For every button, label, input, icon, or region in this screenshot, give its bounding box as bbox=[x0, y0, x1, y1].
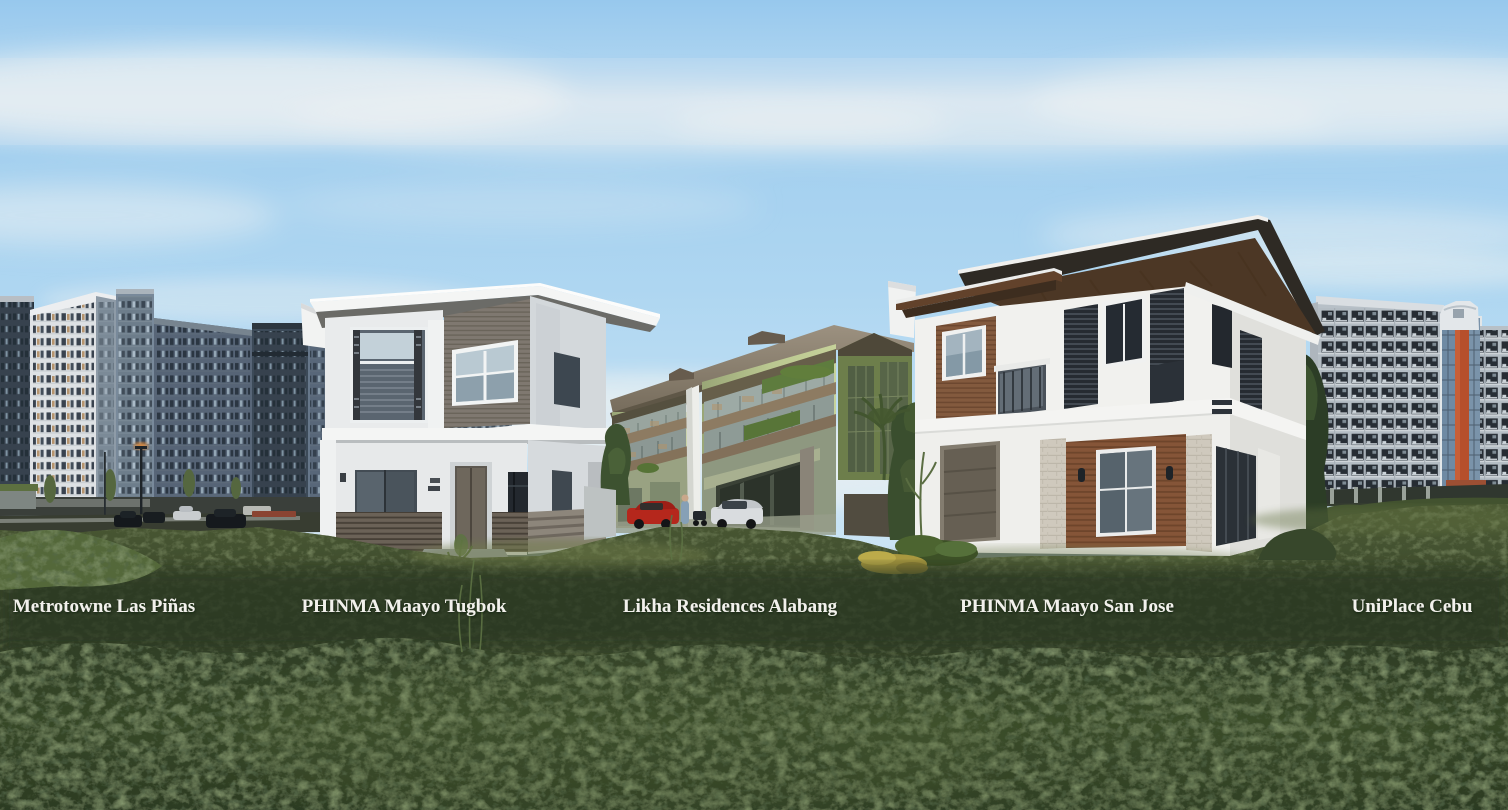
svg-text:UniPlace Cebu: UniPlace Cebu bbox=[1352, 596, 1473, 617]
svg-text:PHINMA Maayo San Jose: PHINMA Maayo San Jose bbox=[960, 596, 1174, 617]
svg-text:Likha Residences Alabang: Likha Residences Alabang bbox=[623, 596, 838, 617]
svg-text:PHINMA Maayo Tugbok: PHINMA Maayo Tugbok bbox=[302, 596, 507, 617]
svg-text:Metrotowne Las Piñas: Metrotowne Las Piñas bbox=[13, 596, 195, 617]
